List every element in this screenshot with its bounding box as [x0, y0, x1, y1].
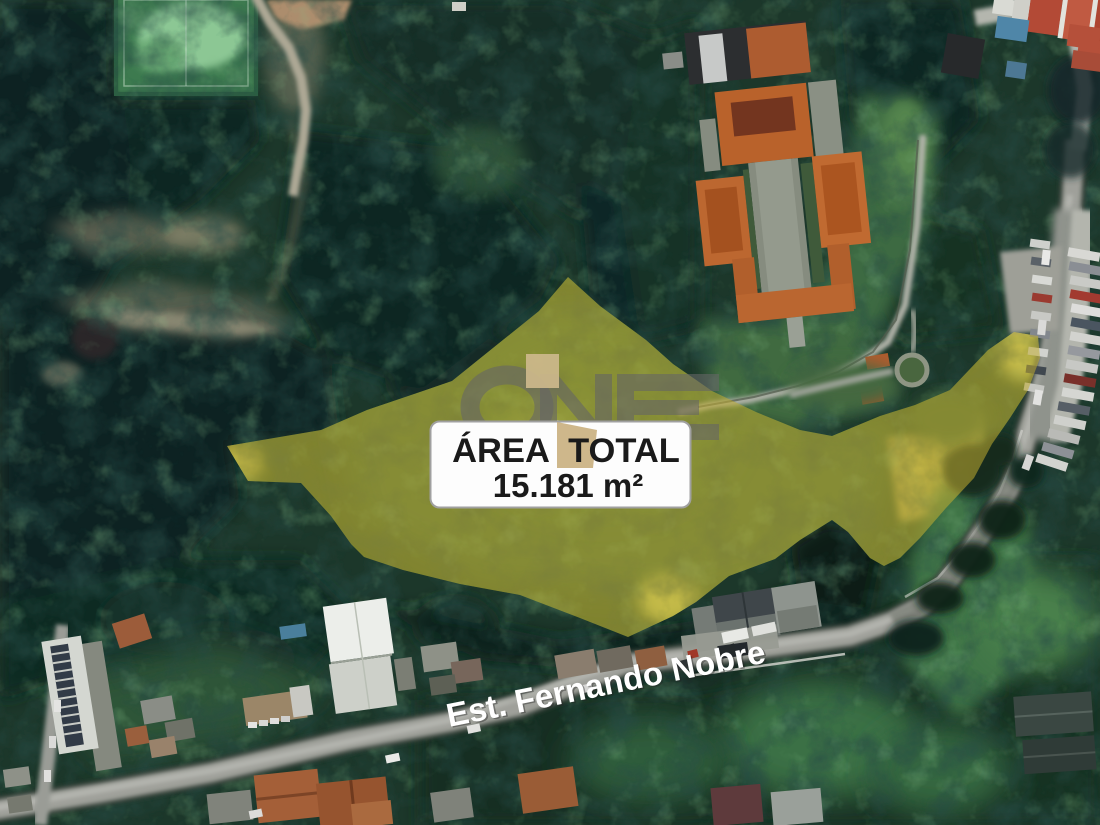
svg-text:15.181 m²: 15.181 m² — [493, 467, 643, 504]
svg-text:TOTAL: TOTAL — [568, 432, 680, 470]
svg-text:ÁREA: ÁREA — [452, 430, 550, 470]
